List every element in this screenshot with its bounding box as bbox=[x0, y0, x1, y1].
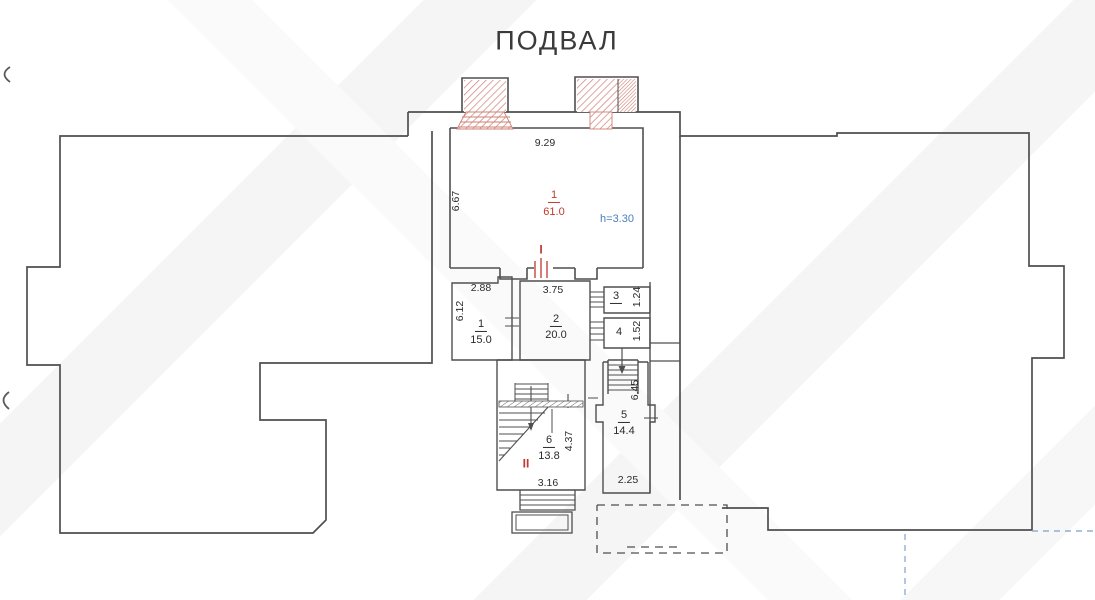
entrance-stair-top-left bbox=[457, 78, 513, 129]
floor-plan-drawing bbox=[0, 0, 1095, 600]
stair-landing-hatch bbox=[499, 401, 583, 407]
entrance-stair-top-right bbox=[575, 77, 638, 129]
floor-plan-page: ПОДВАЛ 9.296.67161.0h=3.30I2.886.12115.0… bbox=[0, 0, 1095, 600]
entrance-1-door-marks bbox=[535, 258, 547, 278]
scan-artifacts bbox=[4, 67, 11, 409]
